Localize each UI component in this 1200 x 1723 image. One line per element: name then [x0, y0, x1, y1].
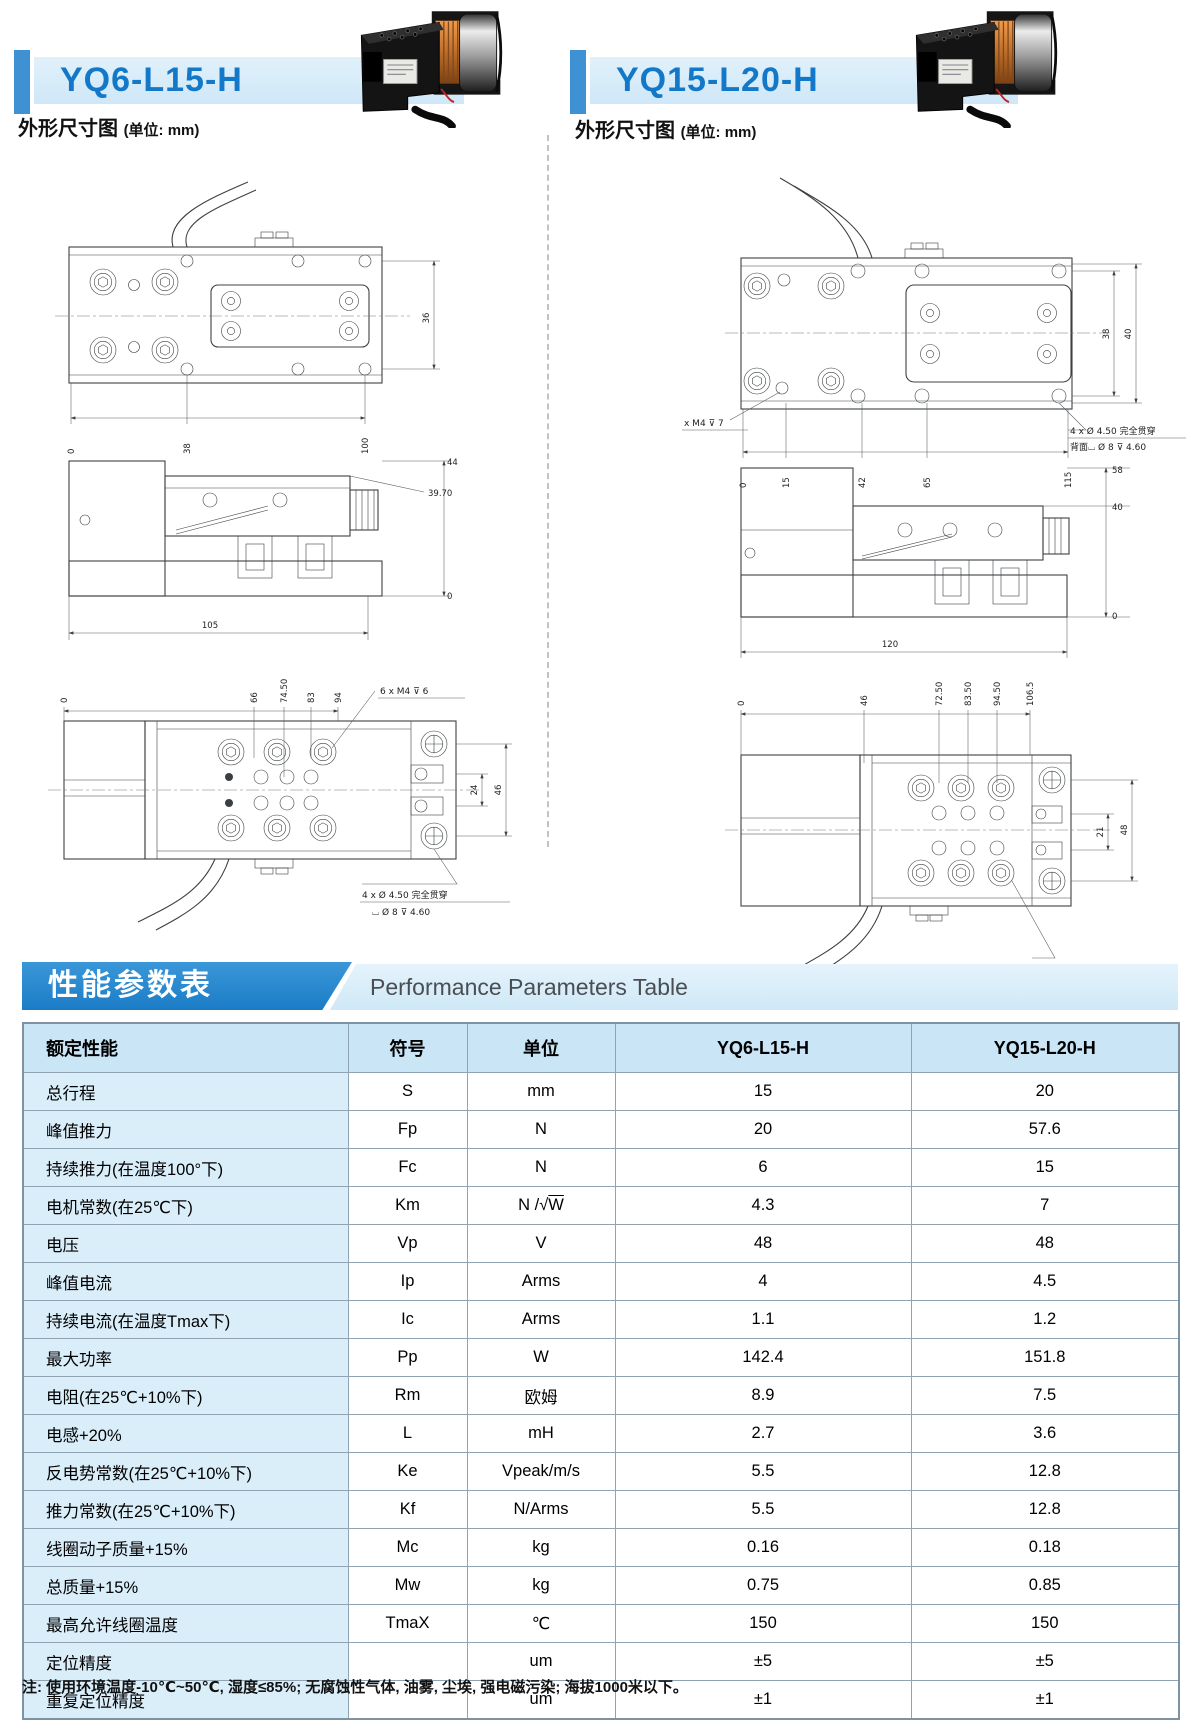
- param-value-model2: 7.5: [911, 1377, 1179, 1415]
- param-unit: N: [467, 1111, 615, 1149]
- param-value-model2: 150: [911, 1605, 1179, 1643]
- param-value-model2: 48: [911, 1225, 1179, 1263]
- param-label: 峰值电流: [23, 1263, 348, 1301]
- param-symbol: S: [348, 1073, 467, 1111]
- dim-label: 0: [67, 449, 77, 454]
- dim-label: 15: [782, 477, 792, 488]
- dim-label: 46: [494, 785, 504, 796]
- dim-label: 83: [307, 692, 317, 703]
- param-unit: N /√W: [467, 1187, 615, 1225]
- param-unit: V: [467, 1225, 615, 1263]
- param-unit: N: [467, 1149, 615, 1187]
- param-unit: um: [467, 1643, 615, 1681]
- param-symbol: Kf: [348, 1491, 467, 1529]
- thread-note: 6 x M4 ⊽ 6: [380, 687, 429, 697]
- param-symbol: Ip: [348, 1263, 467, 1301]
- section-banner: 性能参数表 Performance Parameters Table: [22, 962, 1178, 1010]
- table-row: 电感+20%LmH2.73.6: [23, 1415, 1179, 1453]
- product-photo: [895, 2, 1073, 128]
- dim-label: 115: [1064, 472, 1074, 488]
- param-value-model2: 12.8: [911, 1453, 1179, 1491]
- param-unit: 欧姆: [467, 1377, 615, 1415]
- param-value-model1: 142.4: [615, 1339, 911, 1377]
- right-top-view: 38 40 0 15 42 65 115 x M4 ⊽ 7 4 x Ø 4.50…: [682, 178, 1186, 488]
- table-row: 峰值电流IpArms44.5: [23, 1263, 1179, 1301]
- header-model-1: YQ6-L15-H: [615, 1023, 911, 1073]
- param-label: 电机常数(在25℃下): [23, 1187, 348, 1225]
- dim-label: 38: [183, 443, 193, 454]
- table-row: 总行程Smm1520: [23, 1073, 1179, 1111]
- params-table-body: 总行程Smm1520峰值推力FpN2057.6持续推力(在温度100°下)FcN…: [23, 1073, 1179, 1720]
- hole-note: 4 x Ø 4.50 完全贯穿: [362, 889, 448, 901]
- param-unit: mH: [467, 1415, 615, 1453]
- table-row: 总质量+15%Mwkg0.750.85: [23, 1567, 1179, 1605]
- dim-label: 40: [1124, 329, 1134, 340]
- table-row: 持续推力(在温度100°下)FcN615: [23, 1149, 1179, 1187]
- footnote: 注: 使用环境温度-10℃~50℃, 湿度≤85%; 无腐蚀性气体, 油雾, 尘…: [22, 1676, 688, 1697]
- table-row: 峰值推力FpN2057.6: [23, 1111, 1179, 1149]
- param-label: 反电势常数(在25℃+10%下): [23, 1453, 348, 1491]
- param-value-model2: ±5: [911, 1643, 1179, 1681]
- caption-unit: (单位: mm): [124, 122, 200, 139]
- param-value-model1: 5.5: [615, 1453, 911, 1491]
- header-model-2: YQ15-L20-H: [911, 1023, 1179, 1073]
- param-label: 线圈动子质量+15%: [23, 1529, 348, 1567]
- param-symbol: Ic: [348, 1301, 467, 1339]
- header-symbol: 符号: [348, 1023, 467, 1073]
- hole-note: 背面⌴ Ø 8 ⊽ 4.60: [1070, 441, 1146, 453]
- param-symbol: Mc: [348, 1529, 467, 1567]
- param-value-model2: ±1: [911, 1681, 1179, 1720]
- dim-label: 58: [1112, 466, 1123, 476]
- table-row: 持续电流(在温度Tmax下)IcArms1.11.2: [23, 1301, 1179, 1339]
- param-label: 总行程: [23, 1073, 348, 1111]
- dim-label: 21: [1096, 827, 1106, 838]
- dim-label: 42: [858, 477, 868, 488]
- drawing-caption: 外形尺寸图 (单位: mm): [18, 112, 199, 141]
- hole-note: 4 x Ø 4.50 完全贯穿: [1070, 425, 1156, 437]
- right-side-view: 58 40 0 120: [741, 466, 1130, 658]
- performance-parameters-table: 额定性能 符号 单位 YQ6-L15-H YQ15-L20-H 总行程Smm15…: [22, 1022, 1180, 1720]
- param-symbol: [348, 1643, 467, 1681]
- dim-label: 48: [1120, 825, 1130, 836]
- param-value-model1: 48: [615, 1225, 911, 1263]
- param-unit: Arms: [467, 1263, 615, 1301]
- param-value-model2: 1.2: [911, 1301, 1179, 1339]
- drawing-caption: 外形尺寸图 (单位: mm): [575, 114, 756, 143]
- param-symbol: Ke: [348, 1453, 467, 1491]
- param-symbol: Fc: [348, 1149, 467, 1187]
- table-row: 推力常数(在25℃+10%下)KfN/Arms5.512.8: [23, 1491, 1179, 1529]
- param-unit: ℃: [467, 1605, 615, 1643]
- param-value-model1: 5.5: [615, 1491, 911, 1529]
- param-label: 峰值推力: [23, 1111, 348, 1149]
- caption-text: 外形尺寸图: [18, 118, 118, 140]
- param-value-model1: 15: [615, 1073, 911, 1111]
- banner-blue-shape: 性能参数表: [22, 962, 352, 1010]
- param-label: 电感+20%: [23, 1415, 348, 1453]
- param-symbol: TmaX: [348, 1605, 467, 1643]
- param-value-model2: 0.18: [911, 1529, 1179, 1567]
- param-value-model2: 12.8: [911, 1491, 1179, 1529]
- dimension-drawing-left: 36 0 38 100 44 39.70 0 105: [10, 158, 555, 958]
- banner-title-en: Performance Parameters Table: [370, 964, 688, 1010]
- dim-label: 40: [1112, 503, 1123, 513]
- param-value-model1: 150: [615, 1605, 911, 1643]
- param-value-model1: 1.1: [615, 1301, 911, 1339]
- right-bottom-view: 0 46 72.50 83.50 94.50 106.5 21 48 6 x M…: [725, 682, 1138, 978]
- param-value-model1: 8.9: [615, 1377, 911, 1415]
- caption-text: 外形尺寸图: [575, 120, 675, 142]
- thread-note: x M4 ⊽ 7: [684, 419, 724, 429]
- banner-title-zh: 性能参数表: [22, 962, 352, 1010]
- param-symbol: Km: [348, 1187, 467, 1225]
- param-unit: kg: [467, 1529, 615, 1567]
- param-label: 电阻(在25℃+10%下): [23, 1377, 348, 1415]
- param-value-model1: 2.7: [615, 1415, 911, 1453]
- dim-label: 94: [334, 692, 344, 703]
- param-label: 最大功率: [23, 1339, 348, 1377]
- dim-label: 83.50: [964, 682, 974, 706]
- product-photo: [340, 2, 518, 128]
- hole-note: ⌴ Ø 8 ⊽ 4.60: [372, 907, 430, 918]
- param-symbol: L: [348, 1415, 467, 1453]
- param-value-model2: 0.85: [911, 1567, 1179, 1605]
- table-row: 定位精度um±5±5: [23, 1643, 1179, 1681]
- dim-label: 0: [1112, 612, 1117, 622]
- header-rated-performance: 额定性能: [23, 1023, 348, 1073]
- param-value-model2: 3.6: [911, 1415, 1179, 1453]
- dim-label: 39.70: [428, 489, 452, 499]
- dim-label: 38: [1102, 329, 1112, 340]
- param-value-model1: 0.75: [615, 1567, 911, 1605]
- table-row: 线圈动子质量+15%Mckg0.160.18: [23, 1529, 1179, 1567]
- param-symbol: Mw: [348, 1567, 467, 1605]
- param-symbol: Vp: [348, 1225, 467, 1263]
- caption-unit: (单位: mm): [681, 124, 757, 141]
- param-unit: Vpeak/m/s: [467, 1453, 615, 1491]
- dim-label: 105: [202, 621, 218, 631]
- param-label: 电压: [23, 1225, 348, 1263]
- param-value-model1: 6: [615, 1149, 911, 1187]
- table-row: 最大功率PpW142.4151.8: [23, 1339, 1179, 1377]
- table-row: 电机常数(在25℃下)KmN /√W4.37: [23, 1187, 1179, 1225]
- dim-label: 72.50: [935, 682, 945, 706]
- param-label: 总质量+15%: [23, 1567, 348, 1605]
- dimension-drawing-right: 38 40 0 15 42 65 115 x M4 ⊽ 7 4 x Ø 4.50…: [600, 158, 1190, 988]
- dim-label: 65: [923, 477, 933, 488]
- param-value-model2: 7: [911, 1187, 1179, 1225]
- table-row: 电阻(在25℃+10%下)Rm欧姆8.97.5: [23, 1377, 1179, 1415]
- param-value-model2: 15: [911, 1149, 1179, 1187]
- dim-label: 94.50: [993, 682, 1003, 706]
- dim-label: 46: [860, 695, 870, 706]
- accent-bar: [14, 50, 30, 114]
- dim-label: 100: [361, 438, 371, 454]
- table-row: 最高允许线圈温度TmaX℃150150: [23, 1605, 1179, 1643]
- param-label: 持续电流(在温度Tmax下): [23, 1301, 348, 1339]
- product-header-right: YQ15-L20-H: [557, 45, 1200, 125]
- dim-label: 120: [882, 640, 898, 650]
- param-unit: W: [467, 1339, 615, 1377]
- dim-label: 0: [447, 592, 452, 602]
- param-value-model1: 0.16: [615, 1529, 911, 1567]
- param-value-model1: 4.3: [615, 1187, 911, 1225]
- left-bottom-view: 0 66 74.50 83 94 6 x M4 ⊽ 6 24 46 4 x Ø …: [48, 679, 512, 930]
- param-value-model2: 57.6: [911, 1111, 1179, 1149]
- dim-label: 66: [250, 692, 260, 703]
- table-row: 电压VpV4848: [23, 1225, 1179, 1263]
- table-header-row: 额定性能 符号 单位 YQ6-L15-H YQ15-L20-H: [23, 1023, 1179, 1073]
- dim-label: 24: [470, 785, 480, 796]
- param-label: 定位精度: [23, 1643, 348, 1681]
- param-symbol: Rm: [348, 1377, 467, 1415]
- dim-label: 36: [422, 313, 432, 324]
- param-unit: kg: [467, 1567, 615, 1605]
- header-unit: 单位: [467, 1023, 615, 1073]
- param-label: 最高允许线圈温度: [23, 1605, 348, 1643]
- dim-label: 106.5: [1026, 682, 1036, 706]
- param-value-model1: 20: [615, 1111, 911, 1149]
- param-label: 持续推力(在温度100°下): [23, 1149, 348, 1187]
- param-symbol: Pp: [348, 1339, 467, 1377]
- param-unit: N/Arms: [467, 1491, 615, 1529]
- param-value-model2: 20: [911, 1073, 1179, 1111]
- param-unit: mm: [467, 1073, 615, 1111]
- param-value-model2: 151.8: [911, 1339, 1179, 1377]
- accent-bar: [570, 50, 586, 114]
- dim-label: 0: [737, 701, 747, 706]
- param-label: 推力常数(在25℃+10%下): [23, 1491, 348, 1529]
- param-value-model1: ±5: [615, 1643, 911, 1681]
- table-row: 反电势常数(在25℃+10%下)KeVpeak/m/s5.512.8: [23, 1453, 1179, 1491]
- dim-label: 44: [447, 458, 458, 468]
- param-value-model1: 4: [615, 1263, 911, 1301]
- left-side-view: 44 39.70 0 105: [69, 458, 458, 640]
- dim-label: 74.50: [280, 679, 290, 703]
- param-unit: Arms: [467, 1301, 615, 1339]
- param-value-model2: 4.5: [911, 1263, 1179, 1301]
- param-symbol: Fp: [348, 1111, 467, 1149]
- left-top-view: 36 0 38 100: [55, 182, 440, 454]
- dim-label: 0: [60, 698, 70, 703]
